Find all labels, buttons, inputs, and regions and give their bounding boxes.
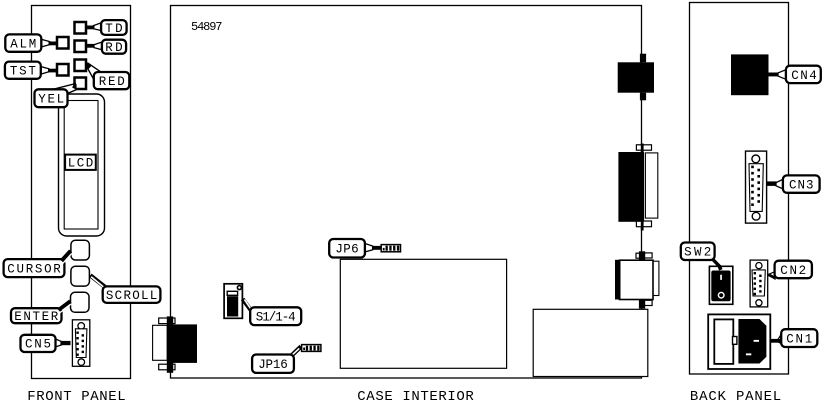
svg-text:JP16: JP16 — [258, 358, 288, 372]
svg-text:ALM: ALM — [10, 38, 36, 52]
svg-text:CASE INTERIOR: CASE INTERIOR — [357, 389, 474, 405]
svg-text:ENTER: ENTER — [14, 310, 58, 324]
svg-text:YEL: YEL — [38, 93, 64, 107]
svg-text:RED: RED — [99, 75, 125, 89]
svg-text:LCD: LCD — [68, 157, 94, 171]
svg-text:S1/1-4: S1/1-4 — [256, 311, 296, 325]
svg-text:CN1: CN1 — [786, 333, 812, 347]
svg-text:CN3: CN3 — [789, 179, 814, 193]
svg-text:SW2: SW2 — [684, 246, 711, 260]
svg-text:BACK PANEL: BACK PANEL — [690, 389, 781, 405]
svg-text:CN5: CN5 — [25, 338, 51, 352]
svg-text:JP6: JP6 — [335, 243, 358, 257]
svg-text:CN2: CN2 — [780, 264, 806, 278]
svg-text:CN4: CN4 — [791, 69, 817, 83]
svg-text:TST: TST — [10, 65, 36, 79]
svg-text:54897: 54897 — [191, 20, 223, 34]
svg-text:FRONT PANEL: FRONT PANEL — [27, 389, 125, 405]
